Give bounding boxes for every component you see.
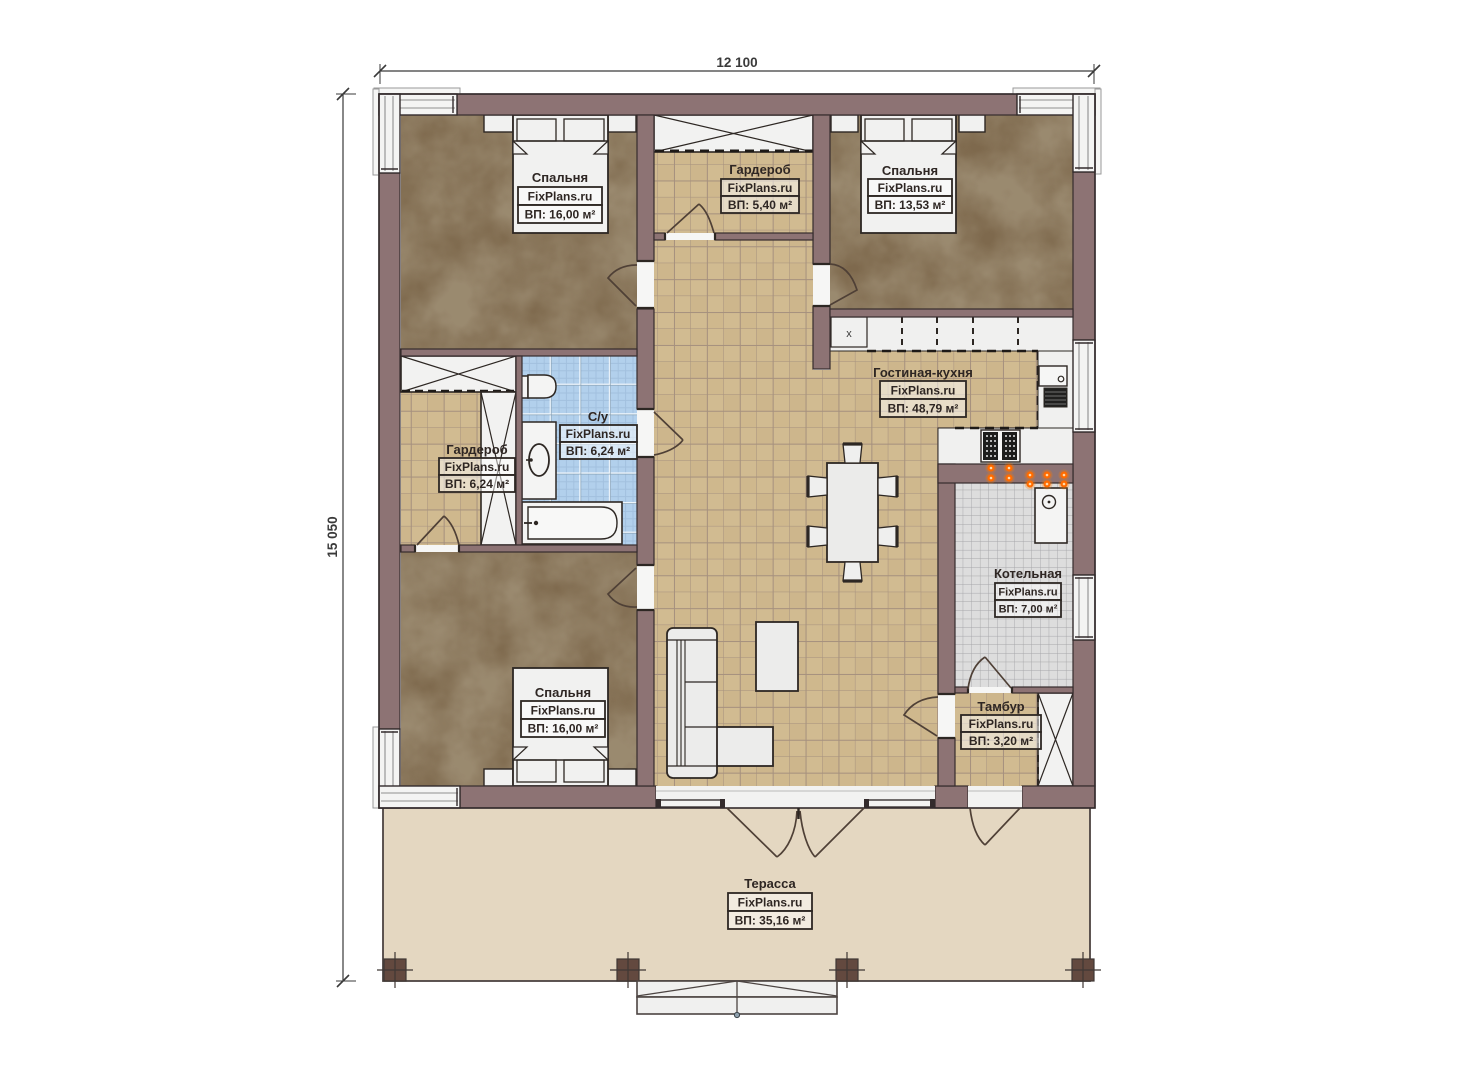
svg-text:FixPlans.ru: FixPlans.ru — [566, 427, 631, 441]
svg-text:FixPlans.ru: FixPlans.ru — [531, 704, 596, 718]
svg-text:ВП: 6,24 м²: ВП: 6,24 м² — [445, 477, 509, 491]
svg-text:Спальня: Спальня — [535, 685, 591, 700]
svg-text:FixPlans.ru: FixPlans.ru — [445, 460, 510, 474]
svg-text:Гардероб: Гардероб — [446, 442, 507, 457]
svg-text:FixPlans.ru: FixPlans.ru — [969, 717, 1034, 731]
svg-text:12 100: 12 100 — [716, 55, 757, 70]
svg-text:FixPlans.ru: FixPlans.ru — [878, 181, 943, 195]
svg-text:FixPlans.ru: FixPlans.ru — [728, 181, 793, 195]
svg-text:Котельная: Котельная — [994, 566, 1062, 581]
svg-text:ВП: 7,00 м²: ВП: 7,00 м² — [999, 604, 1058, 616]
svg-text:ВП: 35,16 м²: ВП: 35,16 м² — [735, 914, 806, 928]
svg-text:ВП: 6,24 м²: ВП: 6,24 м² — [566, 444, 630, 458]
svg-text:Гостиная-кухня: Гостиная-кухня — [873, 365, 973, 380]
svg-text:ВП: 5,40 м²: ВП: 5,40 м² — [728, 198, 792, 212]
svg-text:FixPlans.ru: FixPlans.ru — [891, 384, 956, 398]
svg-text:FixPlans.ru: FixPlans.ru — [528, 190, 593, 204]
svg-text:Гардероб: Гардероб — [729, 162, 790, 177]
svg-text:FixPlans.ru: FixPlans.ru — [738, 896, 803, 910]
svg-text:FixPlans.ru: FixPlans.ru — [998, 587, 1057, 599]
svg-text:ВП: 48,79 м²: ВП: 48,79 м² — [888, 402, 959, 416]
svg-text:ВП: 3,20 м²: ВП: 3,20 м² — [969, 734, 1033, 748]
svg-text:Спальня: Спальня — [532, 170, 588, 185]
svg-text:ВП: 13,53 м²: ВП: 13,53 м² — [875, 198, 946, 212]
svg-text:ВП: 16,00 м²: ВП: 16,00 м² — [528, 722, 599, 736]
svg-text:С/у: С/у — [588, 409, 609, 424]
svg-text:х: х — [846, 328, 852, 340]
svg-text:Тамбур: Тамбур — [977, 699, 1024, 714]
svg-text:Спальня: Спальня — [882, 163, 938, 178]
svg-text:15 050: 15 050 — [325, 516, 340, 557]
svg-text:Терасса: Терасса — [744, 876, 796, 891]
svg-text:ВП: 16,00 м²: ВП: 16,00 м² — [525, 208, 596, 222]
